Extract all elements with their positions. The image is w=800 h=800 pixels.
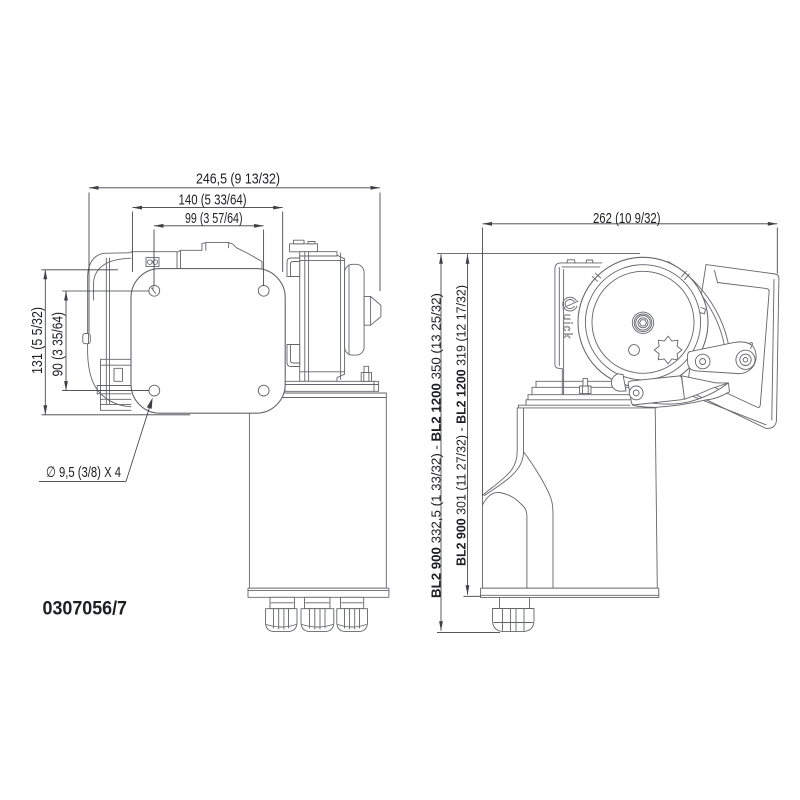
svg-text:140 (5 33/64): 140 (5 33/64)	[179, 192, 247, 209]
svg-text:90 (3 35/64): 90 (3 35/64)	[50, 312, 67, 377]
svg-text:BL2 900 301 (11 27/32) - BL2 1: BL2 900 301 (11 27/32) - BL2 1200 319 (1…	[455, 285, 469, 566]
svg-text:246,5 (9 13/32): 246,5 (9 13/32)	[196, 171, 280, 188]
svg-text:uick: uick	[560, 314, 572, 340]
svg-text:262 (10 9/32): 262 (10 9/32)	[593, 210, 661, 227]
svg-text:∅ 9,5 (3/8) X 4: ∅ 9,5 (3/8) X 4	[46, 464, 121, 481]
svg-text:BL2 900 332,5 (1 33/32) - BL2: BL2 900 332,5 (1 33/32) - BL2 1200 350 (…	[429, 293, 443, 598]
svg-text:131 (5 5/32): 131 (5 5/32)	[29, 307, 46, 374]
svg-text:99 (3 57/64): 99 (3 57/64)	[185, 210, 243, 227]
svg-text:0307056/7: 0307056/7	[43, 599, 128, 620]
